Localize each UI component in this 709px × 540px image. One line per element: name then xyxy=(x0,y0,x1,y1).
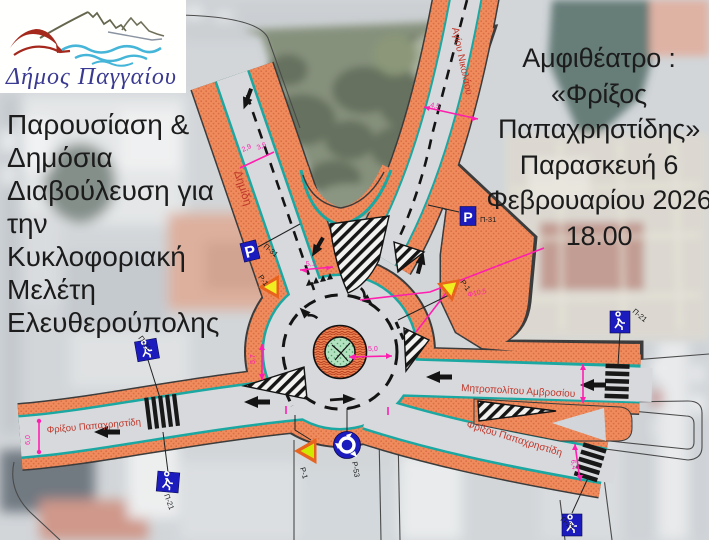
svg-text:6,0: 6,0 xyxy=(25,435,32,445)
svg-text:5,0: 5,0 xyxy=(368,346,378,353)
svg-text:5,7: 5,7 xyxy=(250,354,257,364)
svg-text:5,1: 5,1 xyxy=(306,260,316,268)
svg-text:6,4: 6,4 xyxy=(569,459,577,470)
svg-text:Δήμος Παγγαίου: Δήμος Παγγαίου xyxy=(5,64,177,90)
svg-text:P: P xyxy=(463,209,472,225)
